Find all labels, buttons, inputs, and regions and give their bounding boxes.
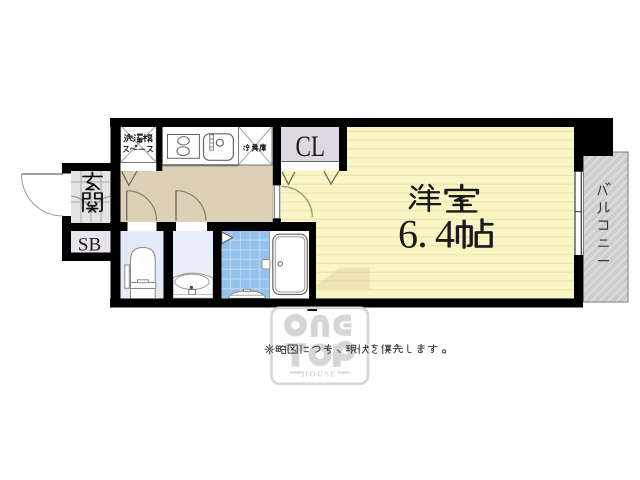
- svg-text:6: 6: [398, 212, 418, 257]
- svg-text:HOUSE: HOUSE: [302, 370, 338, 379]
- svg-text:SB: SB: [78, 235, 101, 256]
- svg-text:4: 4: [435, 212, 455, 257]
- svg-text:CL: CL: [295, 129, 325, 163]
